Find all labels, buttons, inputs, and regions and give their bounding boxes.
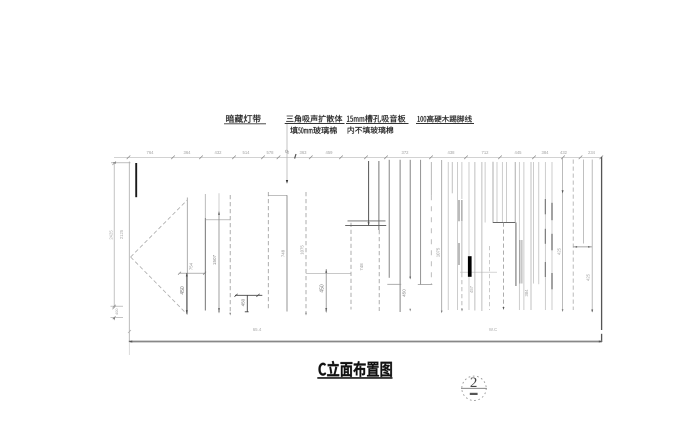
svg-text:450: 450 [180,286,186,295]
svg-text:432: 432 [560,150,568,155]
svg-text:425: 425 [585,273,590,281]
svg-text:1075: 1075 [436,247,441,257]
svg-text:2425: 2425 [109,230,114,240]
svg-text:364: 364 [184,150,192,155]
svg-text:384: 384 [524,289,529,297]
svg-text:432: 432 [215,150,223,155]
svg-text:0: 0 [287,150,290,155]
svg-text:2125: 2125 [119,229,124,239]
svg-text:578: 578 [267,150,275,155]
svg-text:457: 457 [469,285,474,293]
svg-text:450: 450 [402,289,407,297]
svg-text:363: 363 [300,150,308,155]
svg-text:2: 2 [470,375,478,391]
svg-text:384: 384 [542,150,550,155]
svg-text:764: 764 [147,150,155,155]
svg-text:400: 400 [114,308,119,315]
svg-text:514: 514 [243,150,251,155]
svg-text:445: 445 [515,150,523,155]
svg-text:450: 450 [240,298,245,306]
svg-text:65.4: 65.4 [253,327,262,332]
svg-text:748: 748 [359,263,364,271]
svg-text:372: 372 [402,150,410,155]
svg-text:438: 438 [448,150,456,155]
svg-text:425: 425 [556,247,561,255]
svg-text:748: 748 [280,249,285,257]
svg-text:712: 712 [482,150,490,155]
svg-text:459: 459 [326,150,334,155]
svg-text:1075: 1075 [299,245,304,255]
svg-text:754: 754 [188,262,193,270]
svg-text:234: 234 [588,150,596,155]
svg-text:1507: 1507 [212,254,217,265]
svg-text:W.C: W.C [489,327,497,332]
svg-text:450: 450 [320,284,326,293]
